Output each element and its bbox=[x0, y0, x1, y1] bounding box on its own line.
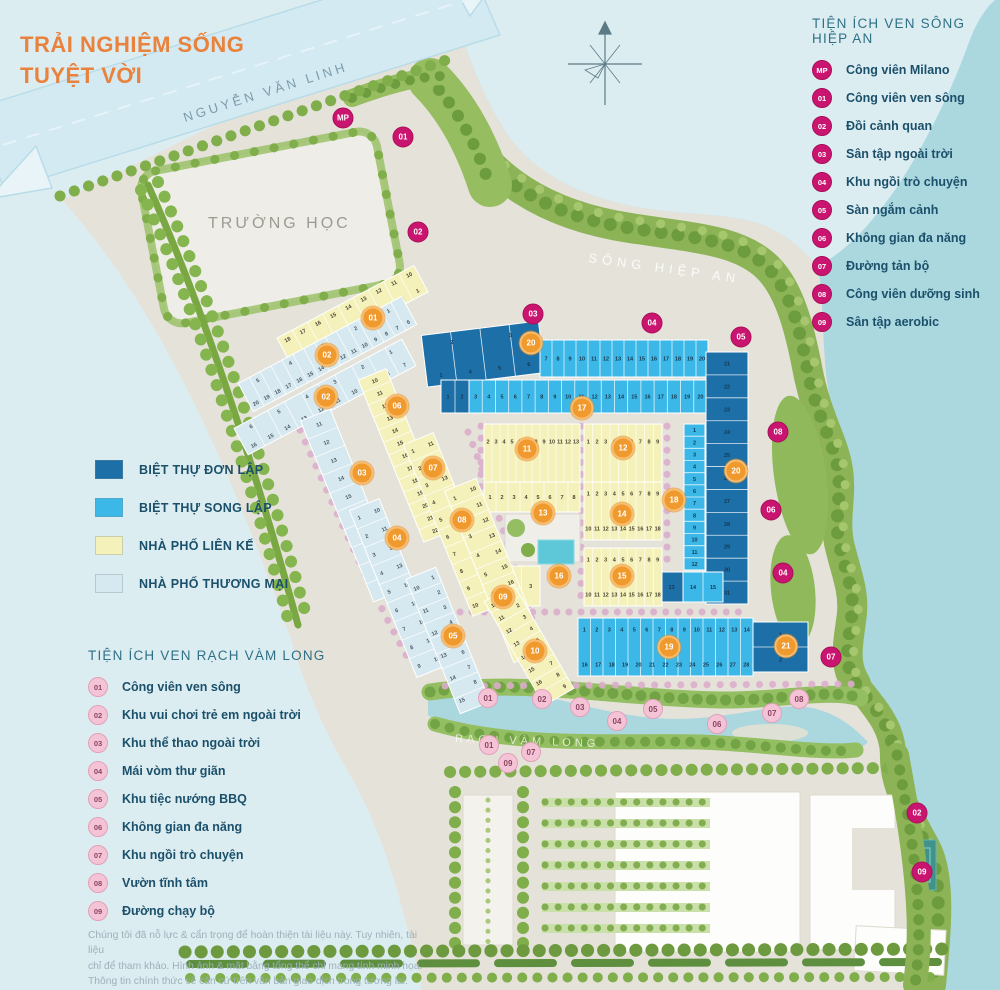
creek-legend-label: Khu ngồi trò chuyện bbox=[122, 848, 244, 862]
block-marker-13: 13 bbox=[532, 502, 555, 525]
lot-number: 15 bbox=[639, 357, 645, 363]
river-legend-item-09: 09Sân tập aerobic bbox=[812, 312, 998, 332]
river-legend-label: Công viên Milano bbox=[846, 63, 949, 77]
river-legend-label: Khu ngồi trò chuyện bbox=[846, 175, 968, 189]
creek-amenity-marker-04: 04 bbox=[607, 711, 627, 731]
lot-number: 13 bbox=[573, 440, 579, 446]
lot-number: 20 bbox=[636, 662, 642, 668]
lot-number: 15 bbox=[631, 395, 637, 401]
creek-amenity-marker-08: 08 bbox=[789, 689, 809, 709]
lot-number: 18 bbox=[609, 662, 615, 668]
creek-legend-badge-06: 06 bbox=[88, 817, 108, 837]
lot-number: 11 bbox=[594, 592, 600, 598]
lot-number: 24 bbox=[724, 430, 731, 436]
lot-number: 19 bbox=[622, 662, 628, 668]
lot-number: 2 bbox=[779, 658, 782, 664]
lot-number: 19 bbox=[684, 395, 690, 401]
lot-number: 2 bbox=[595, 628, 598, 634]
river-legend-item-05: 05Sàn ngắm cảnh bbox=[812, 200, 998, 220]
river-amenity-marker-02: 02 bbox=[907, 803, 928, 824]
lot-number: 9 bbox=[656, 440, 659, 446]
river-legend-item-06: 06Không gian đa năng bbox=[812, 228, 998, 248]
river-amenity-marker-04: 04 bbox=[773, 563, 794, 584]
lot-number: 7 bbox=[639, 492, 642, 498]
river-legend-badge-07: 07 bbox=[812, 256, 832, 276]
river-legend-badge-MP: MP bbox=[812, 60, 832, 80]
lot-number: 27 bbox=[724, 499, 730, 505]
lot-number: 10 bbox=[579, 357, 585, 363]
lot-number: 12 bbox=[603, 592, 609, 598]
lot-number: 3 bbox=[604, 440, 607, 446]
lot-number: 12 bbox=[691, 562, 697, 568]
river-legend-item-02: 02Đồi cảnh quan bbox=[812, 116, 998, 136]
river-amenity-marker-03: 03 bbox=[523, 304, 544, 325]
lot-number: 7 bbox=[639, 440, 642, 446]
river-legend-badge-08: 08 bbox=[812, 284, 832, 304]
river-legend-badge-01: 01 bbox=[812, 88, 832, 108]
lot-number: 8 bbox=[540, 395, 543, 401]
river-legend-item-03: 03Sân tập ngoài trời bbox=[812, 144, 998, 164]
lot-number: 5 bbox=[501, 395, 504, 401]
lot-number: 5 bbox=[621, 492, 624, 498]
creek-legend-item-05: 05Khu tiệc nướng BBQ bbox=[88, 789, 338, 809]
lot-number: 3 bbox=[474, 395, 477, 401]
lot-number: 1 bbox=[488, 495, 491, 501]
creek-legend-label: Đường chạy bộ bbox=[122, 904, 215, 918]
creek-legend-item-08: 08Vườn tĩnh tâm bbox=[88, 873, 338, 893]
lot-number: 1 bbox=[583, 628, 586, 634]
lot-number: 16 bbox=[644, 395, 650, 401]
block-marker-16: 16 bbox=[548, 565, 571, 588]
lot-number: 2 bbox=[595, 440, 598, 446]
lot-number: 19 bbox=[687, 357, 693, 363]
lot-number: 6 bbox=[693, 489, 696, 495]
disclaimer-text: Chúng tôi đã nỗ lực & cẩn trọng để hoàn … bbox=[88, 928, 423, 990]
river-legend-item-MP: MPCông viên Milano bbox=[812, 60, 998, 80]
lot-number: 2 bbox=[693, 440, 696, 446]
lot-number: 13 bbox=[611, 592, 617, 598]
lot-number: 10 bbox=[694, 628, 700, 634]
housing-legend-label: NHÀ PHỐ THƯƠNG MẠI bbox=[139, 577, 288, 591]
housing-legend-item-lien_ke: NHÀ PHỐ LIÊN KẾ bbox=[95, 536, 335, 555]
creek-legend-label: Không gian đa năng bbox=[122, 820, 242, 834]
lot-number: 7 bbox=[527, 395, 530, 401]
map-label-school: TRƯỜNG HỌC bbox=[208, 213, 351, 232]
block-marker-15: 15 bbox=[611, 565, 634, 588]
river-amenity-marker-04: 04 bbox=[642, 313, 663, 334]
creek-legend-label: Công viên ven sông bbox=[122, 680, 241, 694]
lot-number: 11 bbox=[591, 357, 597, 363]
river-legend-badge-04: 04 bbox=[812, 172, 832, 192]
housing-legend-item-song_lap: BIỆT THỰ SONG LẬP bbox=[95, 498, 335, 517]
lot-number: 12 bbox=[603, 526, 609, 532]
legend-creek-amenities: TIỆN ÍCH VEN RẠCH VÀM LONG 01Công viên v… bbox=[88, 648, 338, 929]
block-marker-02: 02 bbox=[316, 344, 339, 367]
housing-block-17d: 12 bbox=[441, 380, 469, 413]
lot-number: 26 bbox=[716, 662, 722, 668]
lot-number: 9 bbox=[683, 628, 686, 634]
lot-number: 11 bbox=[706, 628, 712, 634]
housing-block-18c: 1415 bbox=[683, 572, 723, 602]
lot-number: 28 bbox=[743, 662, 749, 668]
creek-legend-badge-07: 07 bbox=[88, 845, 108, 865]
lot-number: 8 bbox=[693, 513, 696, 519]
block-marker-10: 10 bbox=[524, 640, 547, 663]
lot-number: 27 bbox=[730, 662, 736, 668]
lot-number: 8 bbox=[556, 357, 559, 363]
lot-number: 14 bbox=[690, 585, 697, 591]
block-marker-20: 20 bbox=[725, 460, 748, 483]
lot-number: 25 bbox=[724, 453, 730, 459]
lot-number: 22 bbox=[724, 384, 730, 390]
lot-number: 28 bbox=[724, 522, 730, 528]
lot-number: 21 bbox=[724, 361, 730, 367]
lot-number: 7 bbox=[560, 495, 563, 501]
river-legend-label: Đường tản bộ bbox=[846, 259, 929, 273]
lot-number: 7 bbox=[544, 357, 547, 363]
housing-color-swatch-don_lap bbox=[95, 460, 123, 479]
lot-number: 5 bbox=[510, 440, 513, 446]
creek-legend-label: Khu vui chơi trẻ em ngoài trời bbox=[122, 708, 301, 722]
lot-number: 8 bbox=[647, 440, 650, 446]
creek-legend-badge-09: 09 bbox=[88, 901, 108, 921]
creek-legend-badge-08: 08 bbox=[88, 873, 108, 893]
lot-number: 6 bbox=[548, 495, 551, 501]
lot-number: 3 bbox=[604, 492, 607, 498]
lot-number: 3 bbox=[693, 452, 696, 458]
lot-number: 18 bbox=[655, 592, 661, 598]
legend-housing-items: BIỆT THỰ ĐƠN LẬPBIỆT THỰ SONG LẬPNHÀ PHỐ… bbox=[95, 460, 335, 593]
block-marker-14: 14 bbox=[611, 503, 634, 526]
lot-number: 3 bbox=[512, 495, 515, 501]
creek-legend-label: Vườn tĩnh tâm bbox=[122, 876, 208, 890]
lot-number: 8 bbox=[670, 628, 673, 634]
lot-number: 14 bbox=[744, 628, 751, 634]
lot-number: 18 bbox=[675, 357, 681, 363]
creek-legend-label: Mái vòm thư giãn bbox=[122, 764, 226, 778]
lot-number: 14 bbox=[620, 592, 627, 598]
lot-number: 3 bbox=[494, 440, 497, 446]
lot-number: 2 bbox=[460, 395, 463, 401]
lot-number: 23 bbox=[676, 662, 682, 668]
masterplan-canvas: 2314567891011121314151617181920123456789… bbox=[0, 0, 1000, 990]
lot-number: 5 bbox=[621, 558, 624, 564]
lot-number: 15 bbox=[629, 592, 635, 598]
creek-amenity-marker-03: 03 bbox=[570, 697, 590, 717]
lot-number: 9 bbox=[542, 440, 545, 446]
creek-legend-item-02: 02Khu vui chơi trẻ em ngoài trời bbox=[88, 705, 338, 725]
swimming-pool bbox=[538, 540, 574, 564]
lot-number: 14 bbox=[620, 526, 627, 532]
lot-number: 10 bbox=[549, 440, 555, 446]
block-marker-06: 06 bbox=[386, 395, 409, 418]
lot-number: 25 bbox=[703, 662, 709, 668]
river-legend-badge-02: 02 bbox=[812, 116, 832, 136]
creek-amenity-marker-06: 06 bbox=[707, 714, 727, 734]
lot-number: 3 bbox=[529, 584, 532, 590]
block-marker-17: 17 bbox=[571, 397, 594, 420]
block-marker-01: 01 bbox=[362, 307, 385, 330]
lot-number: 2 bbox=[595, 558, 598, 564]
creek-amenity-marker-07: 07 bbox=[762, 703, 782, 723]
housing-block-20b: 7891011121314151617181920 bbox=[540, 340, 708, 377]
lot-number: 3 bbox=[604, 558, 607, 564]
lot-number: 1 bbox=[587, 440, 590, 446]
lot-number: 7 bbox=[639, 558, 642, 564]
block-marker-11: 11 bbox=[516, 438, 539, 461]
lot-number: 30 bbox=[724, 568, 730, 574]
housing-legend-label: BIỆT THỰ ĐƠN LẬP bbox=[139, 463, 263, 477]
river-legend-label: Sân tập aerobic bbox=[846, 315, 939, 329]
block-marker-20: 20 bbox=[520, 332, 543, 355]
river-legend-label: Công viên ven sông bbox=[846, 91, 965, 105]
river-legend-label: Sàn ngắm cảnh bbox=[846, 203, 938, 217]
legend-river-title: TIỆN ÍCH VEN SÔNG HIỆP AN bbox=[812, 16, 998, 46]
block-marker-04: 04 bbox=[386, 527, 409, 550]
creek-legend-item-09: 09Đường chạy bộ bbox=[88, 901, 338, 921]
lot-number: 12 bbox=[719, 628, 725, 634]
river-legend-badge-03: 03 bbox=[812, 144, 832, 164]
creek-legend-item-06: 06Không gian đa năng bbox=[88, 817, 338, 837]
housing-color-swatch-song_lap bbox=[95, 498, 123, 517]
creek-amenity-marker-09: 09 bbox=[498, 753, 518, 773]
lot-number: 5 bbox=[536, 495, 539, 501]
creek-legend-item-07: 07Khu ngồi trò chuyện bbox=[88, 845, 338, 865]
lot-number: 17 bbox=[658, 395, 664, 401]
page-title: TRẢI NGHIỆM SỐNG TUYỆT VỜI bbox=[20, 30, 340, 92]
lot-number: 9 bbox=[656, 492, 659, 498]
lot-number: 17 bbox=[646, 526, 652, 532]
river-amenity-marker-02: 02 bbox=[408, 222, 429, 243]
lot-number: 10 bbox=[585, 526, 591, 532]
creek-amenity-marker-07: 07 bbox=[521, 742, 541, 762]
lot-number: 14 bbox=[627, 357, 634, 363]
creek-legend-badge-03: 03 bbox=[88, 733, 108, 753]
housing-legend-label: NHÀ PHỐ LIÊN KẾ bbox=[139, 539, 254, 553]
lot-number: 9 bbox=[553, 395, 556, 401]
lot-number: 5 bbox=[633, 628, 636, 634]
river-amenity-marker-01: 01 bbox=[393, 127, 414, 148]
housing-color-swatch-lien_ke bbox=[95, 536, 123, 555]
creek-legend-badge-01: 01 bbox=[88, 677, 108, 697]
creek-amenity-marker-01: 01 bbox=[479, 735, 499, 755]
lot-number: 5 bbox=[693, 477, 696, 483]
creek-legend-item-04: 04Mái vòm thư giãn bbox=[88, 761, 338, 781]
lot-number: 24 bbox=[689, 662, 696, 668]
creek-legend-item-03: 03Khu thể thao ngoài trời bbox=[88, 733, 338, 753]
creek-legend-badge-02: 02 bbox=[88, 705, 108, 725]
river-legend-badge-09: 09 bbox=[812, 312, 832, 332]
lot-number: 17 bbox=[595, 662, 601, 668]
lot-number: 12 bbox=[565, 440, 571, 446]
lot-number: 17 bbox=[663, 357, 669, 363]
lot-number: 29 bbox=[724, 545, 730, 551]
lot-number: 10 bbox=[585, 592, 591, 598]
river-legend-label: Công viên dưỡng sinh bbox=[846, 287, 980, 301]
lot-number: 10 bbox=[565, 395, 571, 401]
river-amenity-marker-MP: MP bbox=[333, 108, 354, 129]
lot-number: 13 bbox=[615, 357, 621, 363]
housing-block-18b: 13 bbox=[660, 572, 683, 602]
block-marker-02: 02 bbox=[315, 386, 338, 409]
lot-number: 2 bbox=[486, 440, 489, 446]
creek-legend-label: Khu tiệc nướng BBQ bbox=[122, 792, 247, 806]
creek-legend-label: Khu thể thao ngoài trời bbox=[122, 736, 260, 750]
river-legend-item-07: 07Đường tản bộ bbox=[812, 256, 998, 276]
lot-number: 16 bbox=[637, 592, 643, 598]
lot-number: 16 bbox=[637, 526, 643, 532]
block-marker-12: 12 bbox=[612, 437, 635, 460]
lot-number: 8 bbox=[647, 492, 650, 498]
lot-number: 11 bbox=[692, 550, 698, 556]
lot-number: 21 bbox=[649, 662, 655, 668]
legend-river-items: MPCông viên Milano01Công viên ven sông02… bbox=[812, 60, 998, 332]
lot-number: 7 bbox=[658, 628, 661, 634]
lot-number: 9 bbox=[693, 525, 696, 531]
creek-amenity-marker-02: 02 bbox=[532, 689, 552, 709]
housing-legend-item-thuong_mai: NHÀ PHỐ THƯƠNG MẠI bbox=[95, 574, 335, 593]
lot-number: 1 bbox=[587, 492, 590, 498]
lot-number: 16 bbox=[582, 662, 588, 668]
block-marker-07: 07 bbox=[422, 457, 445, 480]
legend-river-amenities: TIỆN ÍCH VEN SÔNG HIỆP AN MPCông viên Mi… bbox=[812, 16, 998, 340]
housing-color-swatch-thuong_mai bbox=[95, 574, 123, 593]
lot-number: 14 bbox=[618, 395, 625, 401]
lot-number: 13 bbox=[611, 526, 617, 532]
lot-number: 13 bbox=[605, 395, 611, 401]
block-marker-21: 21 bbox=[775, 635, 798, 658]
lot-number: 6 bbox=[630, 492, 633, 498]
lot-number: 1 bbox=[693, 428, 696, 434]
river-legend-label: Đồi cảnh quan bbox=[846, 119, 932, 133]
river-legend-badge-05: 05 bbox=[812, 200, 832, 220]
lot-number: 6 bbox=[514, 395, 517, 401]
lot-number: 1 bbox=[587, 558, 590, 564]
lot-number: 15 bbox=[629, 526, 635, 532]
river-legend-item-04: 04Khu ngồi trò chuyện bbox=[812, 172, 998, 192]
river-legend-badge-06: 06 bbox=[812, 228, 832, 248]
block-marker-05: 05 bbox=[442, 625, 465, 648]
lot-number: 18 bbox=[671, 395, 677, 401]
lot-number: 18 bbox=[655, 526, 661, 532]
page-title-line1: TRẢI NGHIỆM SỐNG bbox=[20, 30, 340, 61]
lot-number: 13 bbox=[668, 585, 674, 591]
lot-number: 8 bbox=[572, 495, 575, 501]
lot-number: 2 bbox=[595, 492, 598, 498]
housing-block-18a: 123456789101112 bbox=[684, 424, 705, 570]
housing-legend-item-don_lap: BIỆT THỰ ĐƠN LẬP bbox=[95, 460, 335, 479]
lot-number: 20 bbox=[697, 395, 703, 401]
lot-number: 23 bbox=[724, 407, 730, 413]
lot-number: 12 bbox=[603, 357, 609, 363]
lot-number: 6 bbox=[645, 628, 648, 634]
river-amenity-marker-08: 08 bbox=[768, 422, 789, 443]
lot-number: 13 bbox=[731, 628, 737, 634]
lot-number: 8 bbox=[647, 558, 650, 564]
block-marker-18: 18 bbox=[663, 489, 686, 512]
lot-number: 3 bbox=[608, 628, 611, 634]
lot-number: 10 bbox=[691, 538, 697, 544]
block-marker-03: 03 bbox=[351, 462, 374, 485]
lot-number: 2 bbox=[500, 495, 503, 501]
block-marker-08: 08 bbox=[451, 509, 474, 532]
creek-amenity-marker-01: 01 bbox=[478, 688, 498, 708]
lot-number: 1 bbox=[446, 395, 449, 401]
lot-number: 9 bbox=[656, 558, 659, 564]
creek-legend-badge-04: 04 bbox=[88, 761, 108, 781]
river-legend-label: Không gian đa năng bbox=[846, 231, 966, 245]
river-legend-item-01: 01Công viên ven sông bbox=[812, 88, 998, 108]
lot-number: 6 bbox=[630, 558, 633, 564]
river-amenity-marker-06: 06 bbox=[761, 500, 782, 521]
river-amenity-marker-05: 05 bbox=[731, 327, 752, 348]
river-amenity-marker-07: 07 bbox=[821, 647, 842, 668]
lot-number: 11 bbox=[594, 526, 600, 532]
lot-number: 15 bbox=[710, 585, 716, 591]
lot-number: 22 bbox=[662, 662, 668, 668]
river-legend-label: Sân tập ngoài trời bbox=[846, 147, 953, 161]
housing-legend-label: BIỆT THỰ SONG LẬP bbox=[139, 501, 272, 515]
lot-number: 7 bbox=[693, 501, 696, 507]
lot-number: 9 bbox=[568, 357, 571, 363]
river-amenity-marker-09: 09 bbox=[912, 862, 933, 883]
creek-amenity-marker-05: 05 bbox=[643, 699, 663, 719]
legend-housing-types: BIỆT THỰ ĐƠN LẬPBIỆT THỰ SONG LẬPNHÀ PHỐ… bbox=[95, 460, 335, 612]
creek-legend-badge-05: 05 bbox=[88, 789, 108, 809]
creek-legend-item-01: 01Công viên ven sông bbox=[88, 677, 338, 697]
legend-creek-title: TIỆN ÍCH VEN RẠCH VÀM LONG bbox=[88, 648, 338, 663]
block-marker-19: 19 bbox=[658, 636, 681, 659]
page-title-line2: TUYỆT VỜI bbox=[20, 61, 340, 92]
lot-number: 20 bbox=[699, 357, 705, 363]
lot-number: 31 bbox=[724, 591, 730, 597]
lot-number: 16 bbox=[651, 357, 657, 363]
legend-creek-items: 01Công viên ven sông02Khu vui chơi trẻ e… bbox=[88, 677, 338, 921]
block-marker-09: 09 bbox=[492, 586, 515, 609]
lot-number: 11 bbox=[557, 440, 563, 446]
lot-number: 17 bbox=[646, 592, 652, 598]
lot-number: 12 bbox=[592, 395, 598, 401]
river-legend-item-08: 08Công viên dưỡng sinh bbox=[812, 284, 998, 304]
